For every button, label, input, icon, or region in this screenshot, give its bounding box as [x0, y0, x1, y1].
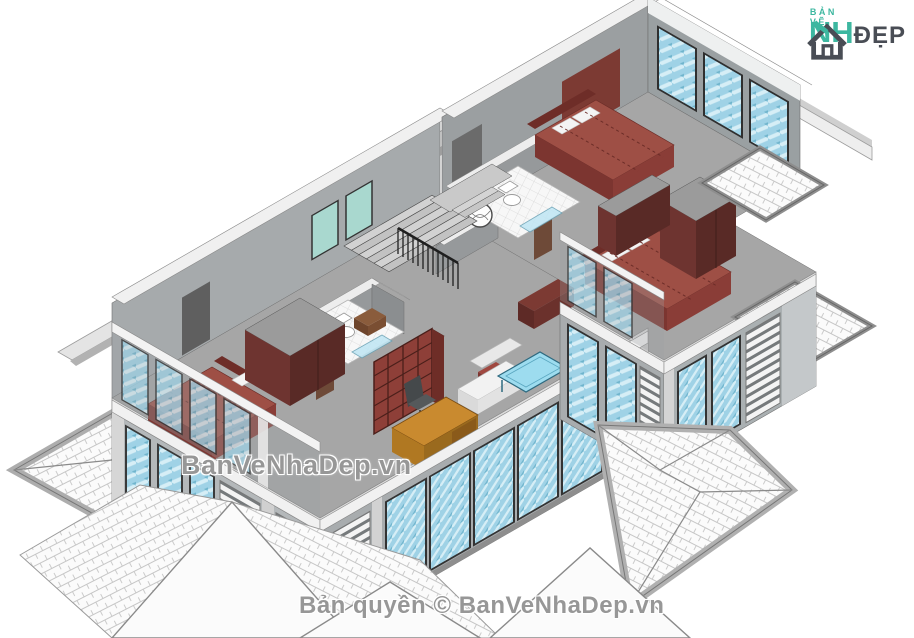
window	[568, 325, 598, 434]
window	[712, 336, 740, 440]
house-icon	[806, 20, 848, 64]
louver-balcony	[746, 313, 780, 423]
toilet	[504, 195, 521, 206]
logo-word-right: ĐẸP	[854, 25, 906, 47]
site-logo: BẢN VẼ NH ĐẸP	[809, 20, 906, 46]
render-stage: BanVeNhaDep.vn Bản quyền © BanVeNhaDep.v…	[0, 0, 914, 638]
floorplan-render	[0, 0, 914, 638]
chimney-accent	[816, 24, 825, 31]
roof-center-right	[598, 425, 792, 605]
